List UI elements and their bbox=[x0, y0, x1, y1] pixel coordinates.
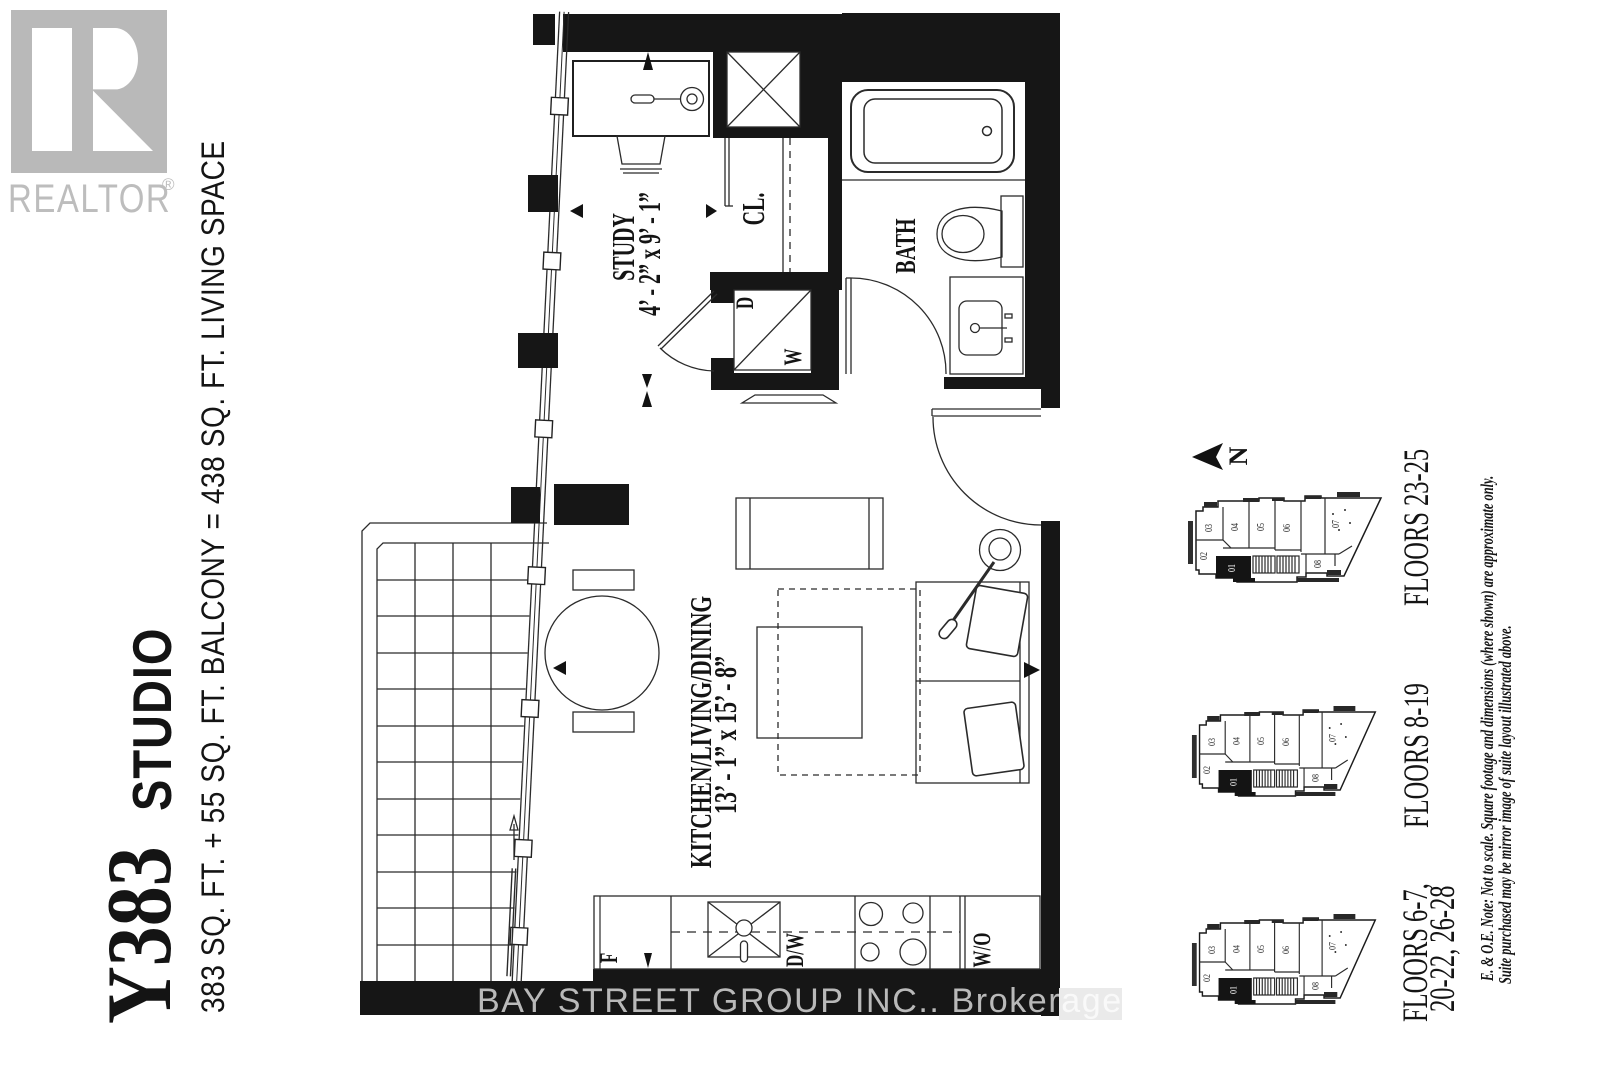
svg-text:4’ - 2” x 9’ - 1”: 4’ - 2” x 9’ - 1” bbox=[631, 192, 667, 316]
svg-text:STUDIO: STUDIO bbox=[122, 628, 183, 811]
svg-text:Y383: Y383 bbox=[88, 846, 190, 1024]
svg-text:D: D bbox=[731, 297, 759, 309]
svg-text:N: N bbox=[1224, 446, 1253, 465]
svg-text:®: ® bbox=[162, 175, 175, 194]
svg-text:E. & O.E. Note: Not to scale.: E. & O.E. Note: Not to scale. Square foo… bbox=[1478, 476, 1498, 982]
svg-text:FLOORS 23-25: FLOORS 23-25 bbox=[1397, 449, 1437, 606]
svg-text:13’ - 1” x 15’ - 8”: 13’ - 1” x 15’ - 8” bbox=[708, 656, 743, 814]
svg-text:BATH: BATH bbox=[891, 218, 922, 273]
svg-text:CL.: CL. bbox=[735, 193, 771, 226]
svg-text:REALTOR: REALTOR bbox=[8, 176, 171, 221]
svg-text:F: F bbox=[595, 953, 623, 963]
svg-text:W/O: W/O bbox=[968, 933, 996, 968]
svg-text:FLOORS 8-19: FLOORS 8-19 bbox=[1397, 683, 1437, 828]
svg-text:383 SQ. FT. + 55 SQ. FT. BALCO: 383 SQ. FT. + 55 SQ. FT. BALCONY = 438 S… bbox=[196, 140, 231, 1013]
svg-text:BAY STREET GROUP INC.. Brokera: BAY STREET GROUP INC.. Brokerage bbox=[477, 982, 1123, 1020]
svg-text:D/W: D/W bbox=[781, 933, 809, 967]
svg-text:W: W bbox=[779, 348, 807, 365]
svg-text:20-22, 26-28: 20-22, 26-28 bbox=[1423, 885, 1463, 1012]
svg-text:Suite purchased may be mirror: Suite purchased may be mirror image of s… bbox=[1496, 625, 1516, 984]
